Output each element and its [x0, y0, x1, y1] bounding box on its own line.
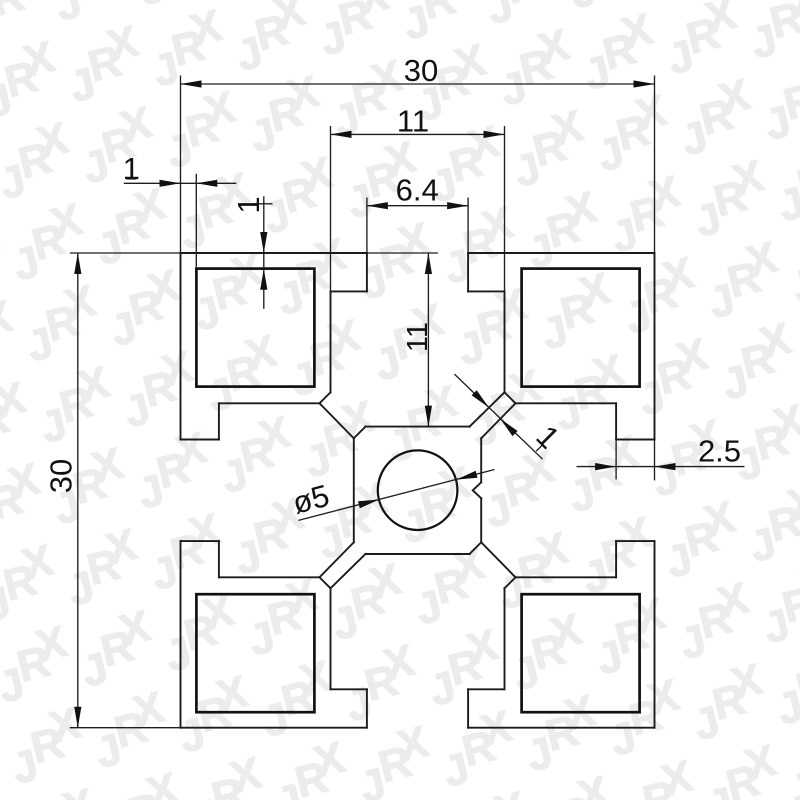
svg-text:2.5: 2.5 — [698, 434, 741, 469]
svg-text:1: 1 — [123, 151, 140, 186]
svg-text:11: 11 — [402, 322, 434, 352]
svg-text:30: 30 — [44, 459, 79, 493]
svg-text:30: 30 — [404, 53, 438, 88]
svg-text:6.4: 6.4 — [396, 173, 439, 208]
svg-text:ø5: ø5 — [289, 478, 333, 521]
svg-text:11: 11 — [397, 104, 429, 139]
svg-text:1: 1 — [231, 196, 266, 213]
